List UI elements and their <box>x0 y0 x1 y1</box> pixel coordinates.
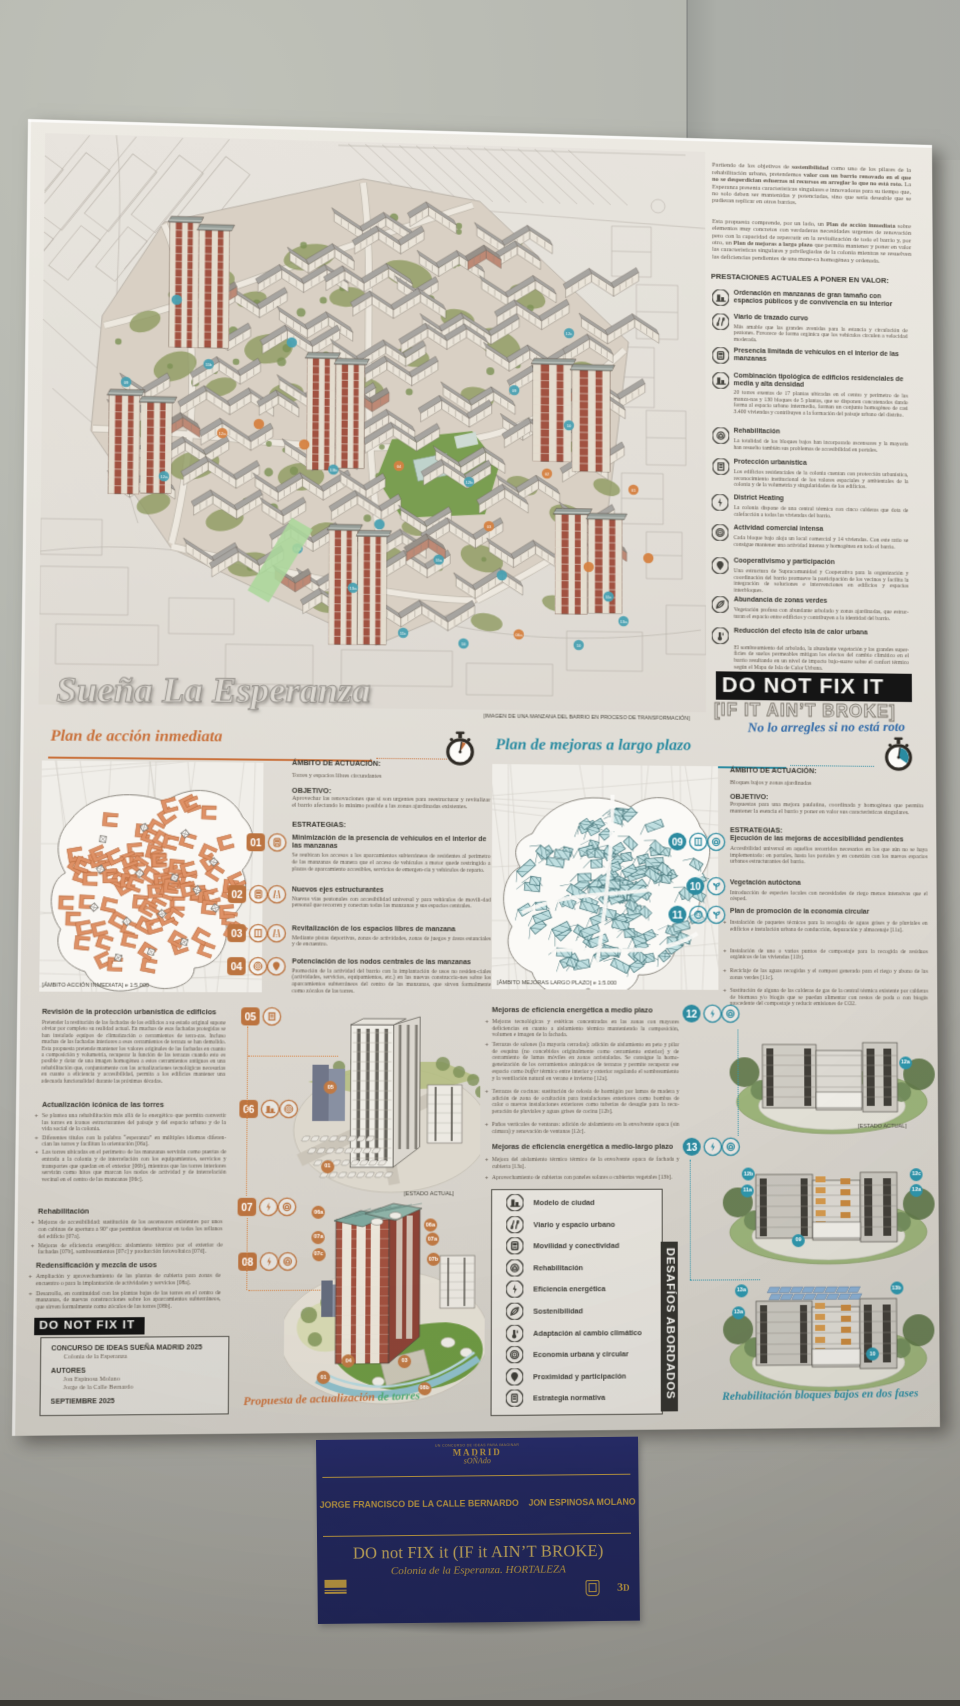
svg-text:13: 13 <box>686 1143 698 1154</box>
svg-text:03: 03 <box>231 928 243 939</box>
svg-text:10: 10 <box>690 881 702 892</box>
svg-text:01: 01 <box>250 838 262 849</box>
svg-text:11: 11 <box>672 910 683 921</box>
svg-text:05: 05 <box>244 1012 256 1023</box>
svg-text:07: 07 <box>241 1203 253 1214</box>
svg-text:09: 09 <box>672 837 684 848</box>
svg-text:04: 04 <box>231 961 243 972</box>
svg-text:02: 02 <box>231 889 243 900</box>
svg-text:12: 12 <box>686 1009 698 1020</box>
svg-text:06: 06 <box>242 1105 254 1116</box>
